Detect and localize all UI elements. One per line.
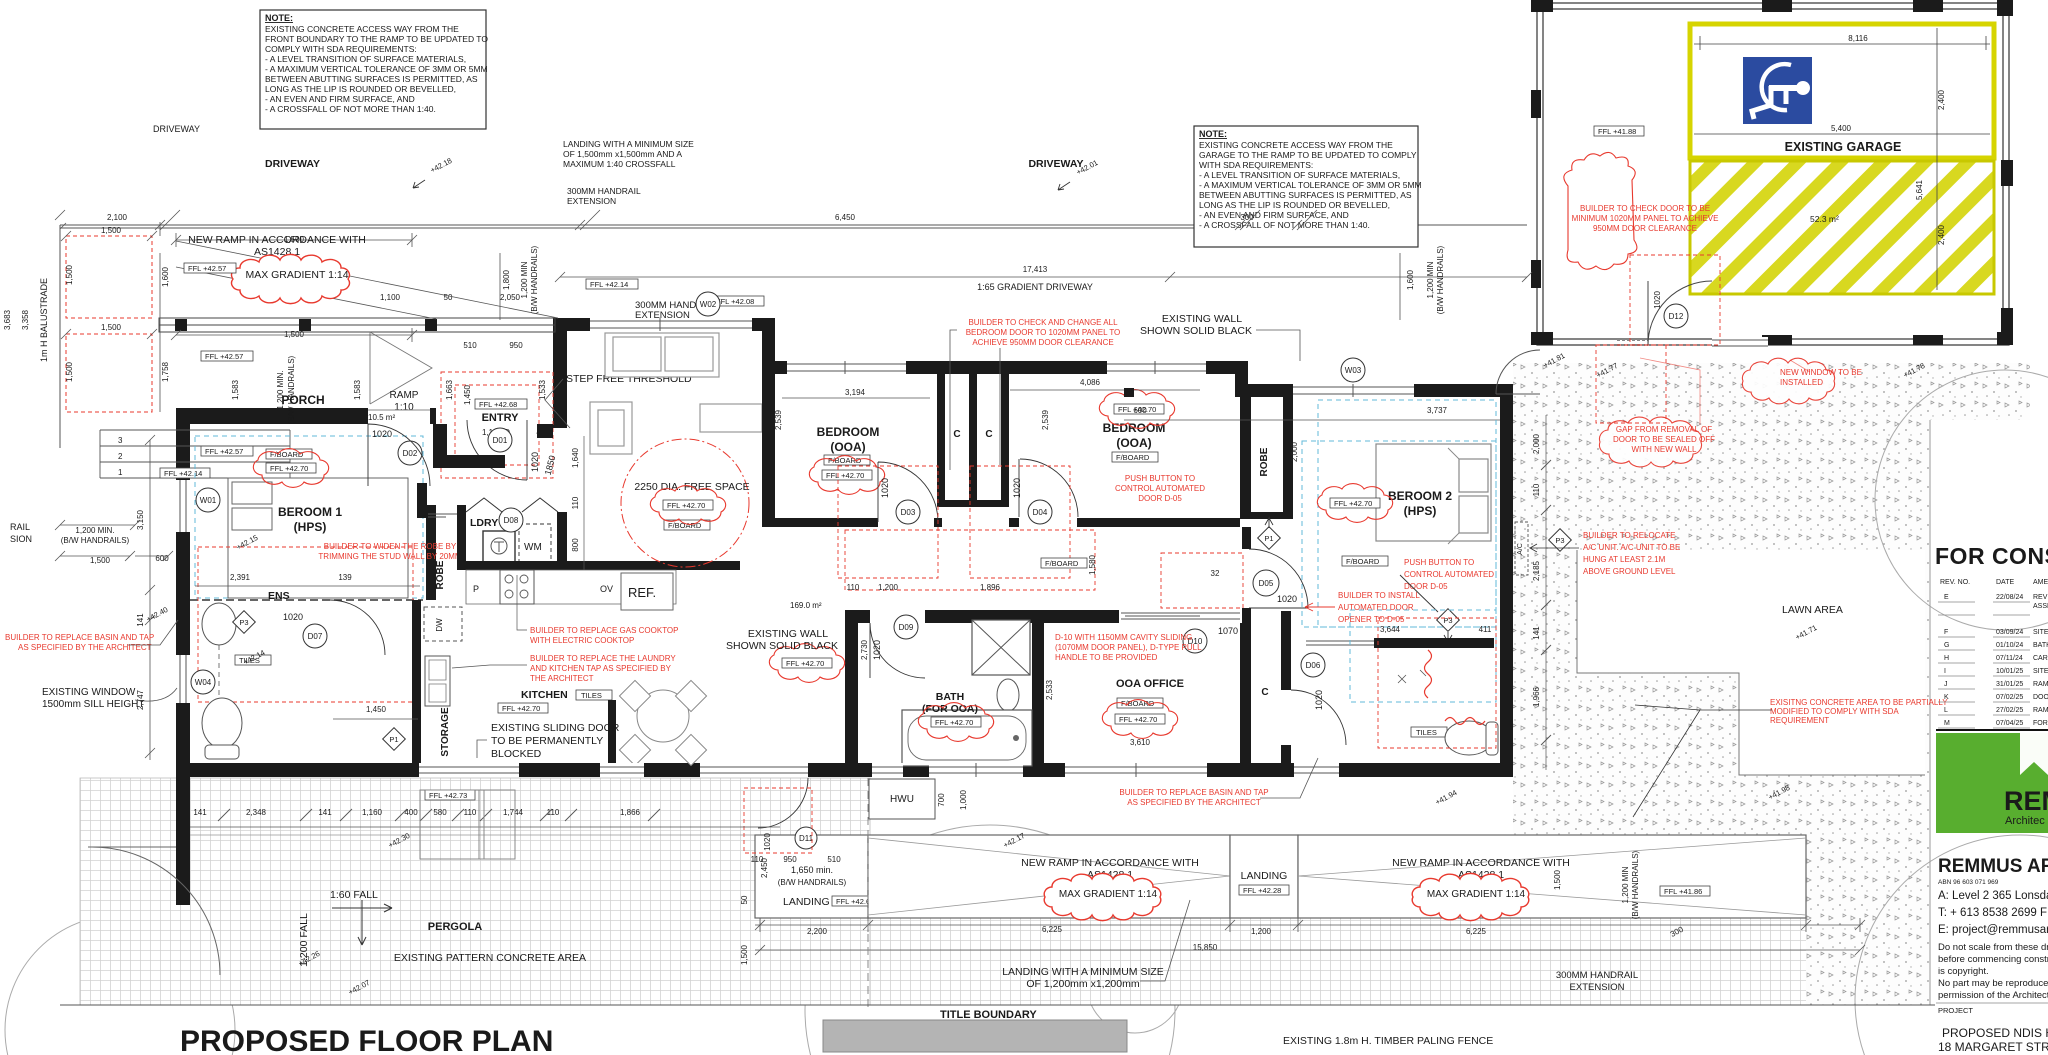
svg-text:A: Level 2 365 Lonsdale: A: Level 2 365 Lonsdale — [1938, 890, 2048, 902]
svg-text:HANDLE TO BE PROVIDED: HANDLE TO BE PROVIDED — [1055, 653, 1158, 662]
svg-text:50: 50 — [444, 293, 453, 302]
svg-text:DOOR T: DOOR T — [2033, 694, 2048, 701]
svg-text:PROJECT: PROJECT — [1938, 1006, 1973, 1015]
svg-text:2,000: 2,000 — [1290, 441, 1299, 462]
svg-text:950MM DOOR CLEARANCE: 950MM DOOR CLEARANCE — [1593, 224, 1697, 233]
svg-text:2,391: 2,391 — [230, 573, 251, 582]
svg-text:AS SPECIFIED BY THE ARCHITECT: AS SPECIFIED BY THE ARCHITECT — [1127, 798, 1261, 807]
svg-text:6,225: 6,225 — [1042, 925, 1063, 934]
svg-text:1,600: 1,600 — [1406, 269, 1415, 290]
svg-text:52.3 m²: 52.3 m² — [1810, 214, 1839, 224]
svg-text:2: 2 — [118, 452, 123, 461]
svg-text:ROBE: ROBE — [1259, 447, 1270, 476]
svg-text:1020: 1020 — [1277, 594, 1297, 604]
svg-text:EXISTING 1.8m H. TIMBER PALING: EXISTING 1.8m H. TIMBER PALING FENCE — [1283, 1035, 1493, 1047]
svg-text:169.0 m²: 169.0 m² — [790, 601, 822, 610]
svg-text:1,650 min.: 1,650 min. — [791, 865, 833, 875]
svg-text:1020: 1020 — [530, 452, 540, 472]
svg-text:F/BOARD: F/BOARD — [270, 450, 304, 459]
svg-text:MAXIMUM 1:40 CROSSFALL: MAXIMUM 1:40 CROSSFALL — [563, 159, 676, 169]
svg-text:BEDROOM DOOR TO 1020MM PANEL T: BEDROOM DOOR TO 1020MM PANEL TO — [966, 328, 1121, 337]
svg-text:E: project@remmusarch: E: project@remmusarch — [1938, 924, 2048, 936]
svg-text:FFL +41.86: FFL +41.86 — [1664, 887, 1702, 896]
svg-text:ROBE: ROBE — [435, 560, 446, 589]
svg-text:1,500: 1,500 — [90, 556, 111, 565]
svg-text:REV. NO.: REV. NO. — [1940, 579, 1970, 586]
svg-text:RAMP G: RAMP G — [2033, 681, 2048, 688]
svg-text:WITH SDA REQUIREMENTS:: WITH SDA REQUIREMENTS: — [1199, 160, 1313, 170]
svg-text:P3: P3 — [239, 618, 248, 627]
svg-text:TRIMMING THE STUD WALL BY 20MM: TRIMMING THE STUD WALL BY 20MM — [318, 552, 461, 561]
svg-text:EXISTING WALL: EXISTING WALL — [748, 628, 828, 640]
svg-text:LANDING WITH A MINIMUM SIZE: LANDING WITH A MINIMUM SIZE — [1002, 966, 1164, 978]
svg-text:J: J — [1944, 681, 1948, 688]
svg-text:1,500: 1,500 — [65, 264, 74, 285]
svg-text:DOOR D-05: DOOR D-05 — [1138, 494, 1182, 503]
svg-text:SHOWN SOLID BLACK: SHOWN SOLID BLACK — [1140, 325, 1252, 337]
svg-text:EXISITNG CONCRETE AREA TO BE P: EXISITNG CONCRETE AREA TO BE PARTIALLY — [1770, 698, 1948, 707]
svg-text:6,225: 6,225 — [1466, 927, 1487, 936]
svg-text:W03: W03 — [1345, 366, 1362, 375]
svg-text:BUILDER TO RELOCATE: BUILDER TO RELOCATE — [1583, 531, 1675, 540]
svg-text:1,200 MIN.: 1,200 MIN. — [276, 370, 285, 409]
svg-text:EXISTING PATTERN CONCRETE AREA: EXISTING PATTERN CONCRETE AREA — [394, 952, 586, 964]
svg-text:PROPOSED FLOOR PLAN: PROPOSED FLOOR PLAN — [180, 1025, 553, 1055]
svg-text:1,800: 1,800 — [502, 269, 511, 290]
svg-text:1,200 MIN: 1,200 MIN — [1621, 866, 1630, 903]
svg-text:BUILDER TO INSTALL: BUILDER TO INSTALL — [1338, 591, 1420, 600]
svg-text:C: C — [1261, 687, 1268, 698]
svg-text:before commencing construc: before commencing construc — [1938, 954, 2048, 965]
svg-text:FFL +42.70: FFL +42.70 — [826, 471, 864, 480]
svg-text:F/BOARD: F/BOARD — [1045, 559, 1079, 568]
svg-text:07/04/25: 07/04/25 — [1996, 720, 2023, 727]
svg-text:510: 510 — [827, 855, 841, 864]
svg-text:(B/W HANDRAILS): (B/W HANDRAILS) — [287, 355, 296, 424]
svg-text:FFL +42.70: FFL +42.70 — [1334, 499, 1372, 508]
svg-text:BATH: BATH — [936, 691, 964, 703]
svg-text:(B/W HANDRAILS): (B/W HANDRAILS) — [1631, 850, 1640, 919]
svg-text:1,640: 1,640 — [571, 447, 580, 468]
svg-text:RAMP: RAMP — [390, 390, 419, 401]
svg-text:BUILDER TO REPLACE THE LAUNDRY: BUILDER TO REPLACE THE LAUNDRY — [530, 654, 676, 663]
svg-text:141: 141 — [1532, 626, 1541, 640]
svg-text:1,200 MIN: 1,200 MIN — [520, 261, 529, 298]
svg-text:M: M — [1944, 720, 1950, 727]
svg-text:1,966: 1,966 — [1532, 686, 1541, 707]
svg-text:1,583: 1,583 — [231, 379, 240, 400]
svg-text:2,050: 2,050 — [500, 293, 521, 302]
svg-text:1:60 FALL: 1:60 FALL — [330, 889, 378, 901]
svg-text:3,610: 3,610 — [1130, 738, 1151, 747]
svg-text:1,533: 1,533 — [538, 379, 547, 400]
svg-text:No part may be reproduced o: No part may be reproduced o — [1938, 978, 2048, 989]
svg-text:A/C: A/C — [1517, 543, 1524, 555]
svg-text:MAX GRADIENT 1:14: MAX GRADIENT 1:14 — [1427, 889, 1526, 900]
svg-text:- AN EVEN AND FIRM SURFACE, AN: - AN EVEN AND FIRM SURFACE, AND — [1199, 210, 1349, 220]
svg-text:Do not scale from these draw: Do not scale from these draw — [1938, 942, 2048, 953]
svg-text:8,116: 8,116 — [1848, 34, 1868, 43]
svg-text:BUILDER TO CHECK AND CHANGE AL: BUILDER TO CHECK AND CHANGE ALL — [968, 318, 1118, 327]
svg-text:BUILDER TO REPLACE BASIN AND T: BUILDER TO REPLACE BASIN AND TAP — [5, 633, 154, 642]
svg-text:1,500: 1,500 — [101, 323, 122, 332]
svg-text:COMPLY WITH SDA REQUIREMENTS:: COMPLY WITH SDA REQUIREMENTS: — [265, 44, 417, 54]
svg-text:WM: WM — [524, 542, 542, 553]
svg-text:NEW RAMP IN ACCORDANCE WITH: NEW RAMP IN ACCORDANCE WITH — [188, 234, 366, 246]
svg-text:2,400: 2,400 — [1937, 89, 1946, 110]
svg-text:1: 1 — [118, 468, 123, 477]
svg-text:2,000: 2,000 — [1532, 433, 1541, 454]
svg-text:EXISTING SLIDING DOOR: EXISTING SLIDING DOOR — [491, 722, 620, 734]
svg-text:3,737: 3,737 — [1427, 406, 1448, 415]
svg-text:ASSESS: ASSESS — [2033, 603, 2048, 610]
svg-text:FFL +42.08: FFL +42.08 — [716, 297, 754, 306]
svg-text:(OOA): (OOA) — [1116, 436, 1151, 450]
svg-text:REQUIREMENT: REQUIREMENT — [1770, 716, 1829, 725]
svg-text:1,580: 1,580 — [1088, 554, 1097, 575]
svg-text:EXISTING WALL: EXISTING WALL — [1162, 313, 1242, 325]
svg-text:BUILDER TO WIDEN THE ROBE BY: BUILDER TO WIDEN THE ROBE BY — [324, 542, 457, 551]
svg-text:STORAGE: STORAGE — [440, 707, 451, 757]
svg-text:GAP FROM REMOVAL OF: GAP FROM REMOVAL OF — [1616, 425, 1712, 434]
svg-text:D-10 WITH 1150MM CAVITY SLIDIN: D-10 WITH 1150MM CAVITY SLIDING — [1055, 633, 1192, 642]
svg-text:D04: D04 — [1033, 508, 1048, 517]
svg-text:EXTENSION: EXTENSION — [567, 196, 616, 206]
svg-text:3,150: 3,150 — [136, 509, 145, 530]
svg-text:SITE LEV: SITE LEV — [2033, 668, 2048, 675]
svg-text:1,200: 1,200 — [878, 583, 899, 592]
svg-text:MAX GRADIENT 1:14: MAX GRADIENT 1:14 — [1059, 889, 1158, 900]
svg-text:110: 110 — [464, 808, 477, 817]
svg-text:D02: D02 — [403, 449, 418, 458]
svg-text:BEROOM 1: BEROOM 1 — [278, 505, 342, 519]
svg-text:FFL +42.70: FFL +42.70 — [786, 659, 824, 668]
svg-text:(HPS): (HPS) — [294, 520, 327, 534]
svg-text:K: K — [1944, 694, 1949, 701]
svg-text:REMMUS ARC: REMMUS ARC — [1938, 856, 2048, 877]
svg-text:2,100: 2,100 — [107, 213, 128, 222]
svg-text:800: 800 — [571, 538, 580, 552]
svg-text:THE ARCHITECT: THE ARCHITECT — [530, 674, 594, 683]
svg-text:17,413: 17,413 — [1023, 265, 1048, 274]
svg-text:FFL +42.70: FFL +42.70 — [270, 464, 308, 473]
svg-text:- A CROSSFALL OF NOT MORE THAN: - A CROSSFALL OF NOT MORE THAN 1:40. — [265, 104, 436, 114]
svg-text:DATE: DATE — [1996, 579, 2014, 586]
svg-text:NOTE:: NOTE: — [1199, 129, 1227, 139]
svg-text:NOTE:: NOTE: — [265, 13, 293, 23]
svg-text:OF 1,500mm x1,500mm AND A: OF 1,500mm x1,500mm AND A — [563, 149, 682, 159]
svg-text:1020: 1020 — [1653, 291, 1662, 309]
svg-text:22/08/24: 22/08/24 — [1996, 594, 2023, 601]
svg-text:BUILDER TO CHECK DOOR TO BE: BUILDER TO CHECK DOOR TO BE — [1580, 204, 1710, 213]
svg-text:F: F — [1944, 629, 1948, 636]
svg-text:BATHRO: BATHRO — [2033, 642, 2048, 649]
svg-text:PUSH BUTTON TO: PUSH BUTTON TO — [1125, 474, 1195, 483]
svg-text:LONG AS THE LIP IS ROUNDED OR: LONG AS THE LIP IS ROUNDED OR BEVELLED, — [265, 84, 456, 94]
svg-text:FFL +42.70: FFL +42.70 — [502, 704, 540, 713]
svg-text:1,200 MIN: 1,200 MIN — [1426, 261, 1435, 298]
svg-text:- A LEVEL TRANSITION OF SURFAC: - A LEVEL TRANSITION OF SURFACE MATERIAL… — [1199, 170, 1400, 180]
svg-text:P: P — [473, 584, 479, 594]
svg-text:1:10: 1:10 — [394, 402, 414, 413]
svg-text:1,200: 1,200 — [1251, 927, 1272, 936]
svg-text:2,730: 2,730 — [860, 639, 869, 660]
svg-text:(B/W HANDRAILS): (B/W HANDRAILS) — [778, 878, 847, 887]
svg-text:(B/W HANDRAILS): (B/W HANDRAILS) — [530, 245, 539, 314]
svg-text:FFL +42.70: FFL +42.70 — [935, 718, 973, 727]
svg-text:LAWN AREA: LAWN AREA — [1782, 604, 1843, 616]
svg-text:F/BOARD: F/BOARD — [1346, 557, 1380, 566]
svg-text:REF.: REF. — [628, 585, 656, 600]
svg-text:2,450: 2,450 — [760, 857, 769, 878]
svg-text:RAIL: RAIL — [10, 522, 30, 532]
svg-text:SHOWN SOLID BLACK: SHOWN SOLID BLACK — [726, 640, 838, 652]
svg-text:LDRY: LDRY — [470, 517, 498, 529]
svg-text:1020: 1020 — [880, 478, 890, 498]
svg-text:300MM HANDRAIL: 300MM HANDRAIL — [1556, 970, 1638, 981]
svg-text:D09: D09 — [899, 623, 914, 632]
svg-text:1:65 GRADIENT DRIVEWAY: 1:65 GRADIENT DRIVEWAY — [977, 282, 1093, 292]
svg-text:W01: W01 — [200, 496, 217, 505]
svg-text:10.5 m²: 10.5 m² — [368, 413, 395, 422]
svg-text:CONTROL AUTOMATED: CONTROL AUTOMATED — [1404, 570, 1494, 579]
svg-text:1,500: 1,500 — [101, 226, 122, 235]
svg-text:D08: D08 — [504, 516, 519, 525]
svg-text:1500mm SILL HEIGHT: 1500mm SILL HEIGHT — [42, 699, 144, 710]
svg-text:07/02/25: 07/02/25 — [1996, 694, 2023, 701]
svg-text:SION: SION — [10, 534, 32, 544]
svg-text:D05: D05 — [1259, 579, 1274, 588]
svg-text:KITCHEN: KITCHEN — [521, 689, 568, 701]
svg-text:Architec: Architec — [2005, 815, 2045, 827]
svg-text:1,500: 1,500 — [740, 944, 749, 965]
svg-text:1,160: 1,160 — [362, 808, 383, 817]
svg-text:1020: 1020 — [872, 640, 882, 660]
svg-text:AUTOMATED DOOR: AUTOMATED DOOR — [1338, 603, 1414, 612]
svg-text:D11: D11 — [799, 834, 814, 843]
svg-text:1020: 1020 — [283, 612, 303, 622]
svg-text:NEW RAMP IN ACCORDANCE WITH: NEW RAMP IN ACCORDANCE WITH — [1021, 857, 1199, 869]
svg-text:2,200: 2,200 — [807, 927, 828, 936]
svg-text:110: 110 — [847, 583, 860, 592]
svg-text:TILES: TILES — [581, 691, 602, 700]
svg-text:MAX GRADIENT 1:14: MAX GRADIENT 1:14 — [245, 269, 348, 281]
svg-text:LANDING WITH A MINIMUM SIZE: LANDING WITH A MINIMUM SIZE — [563, 139, 694, 149]
svg-text:27/02/25: 27/02/25 — [1996, 707, 2023, 714]
svg-text:FFL +42.57: FFL +42.57 — [188, 264, 226, 273]
svg-text:WITH NEW WALL: WITH NEW WALL — [1631, 445, 1697, 454]
svg-text:2,539: 2,539 — [774, 409, 783, 430]
svg-text:3: 3 — [118, 436, 123, 445]
svg-text:ENTRY: ENTRY — [482, 412, 520, 424]
svg-text:LANDING: LANDING — [1241, 870, 1288, 882]
svg-text:1,583: 1,583 — [353, 379, 362, 400]
svg-text:5,400: 5,400 — [1831, 124, 1852, 133]
svg-text:PERGOLA: PERGOLA — [428, 921, 482, 933]
svg-text:(FOR OOA): (FOR OOA) — [922, 703, 978, 715]
svg-text:F/BOARD: F/BOARD — [1116, 453, 1150, 462]
svg-text:110: 110 — [1532, 483, 1541, 496]
svg-text:CONTROL AUTOMATED: CONTROL AUTOMATED — [1115, 484, 1205, 493]
svg-text:1,500: 1,500 — [65, 361, 74, 382]
svg-text:T: + 613 8538 2699 F: +: T: + 613 8538 2699 F: + — [1938, 907, 2048, 919]
svg-text:(B/W HANDRAILS): (B/W HANDRAILS) — [1436, 245, 1445, 314]
svg-text:FFL +42.28: FFL +42.28 — [1243, 886, 1281, 895]
svg-text:(1070MM DOOR PANEL), D-TYPE PU: (1070MM DOOR PANEL), D-TYPE PULL — [1055, 643, 1202, 652]
svg-text:580: 580 — [433, 808, 447, 817]
svg-text:700: 700 — [937, 793, 946, 807]
svg-text:W02: W02 — [700, 300, 717, 309]
svg-text:01/10/24: 01/10/24 — [1996, 642, 2023, 649]
svg-text:BEDROOM: BEDROOM — [817, 425, 880, 439]
svg-text:1,450: 1,450 — [366, 705, 387, 714]
svg-text:CARPOR: CARPOR — [2033, 655, 2048, 662]
svg-text:BETWEEN ABUTTING SURFACES IS P: BETWEEN ABUTTING SURFACES IS PERMITTED, … — [1199, 190, 1412, 200]
svg-text:D01: D01 — [493, 436, 508, 445]
svg-text:EXISTING WINDOW: EXISTING WINDOW — [42, 687, 136, 698]
svg-text:FFL +42.70: FFL +42.70 — [667, 501, 705, 510]
svg-text:1,663: 1,663 — [445, 379, 454, 400]
svg-text:141: 141 — [318, 808, 332, 817]
svg-text:6,450: 6,450 — [835, 213, 856, 222]
svg-text:OPENER TO D-05: OPENER TO D-05 — [1338, 615, 1405, 624]
svg-text:FFL +42.57: FFL +42.57 — [205, 447, 243, 456]
svg-text:15,850: 15,850 — [1193, 943, 1218, 952]
svg-text:510: 510 — [463, 341, 477, 350]
svg-text:L: L — [1944, 707, 1948, 714]
svg-text:- A MAXIMUM VERTICAL TOLERANCE: - A MAXIMUM VERTICAL TOLERANCE OF 3MM OR… — [265, 64, 488, 74]
svg-text:1020: 1020 — [1012, 478, 1022, 498]
svg-text:31/01/25: 31/01/25 — [1996, 681, 2023, 688]
svg-text:18 MARGARET STREE: 18 MARGARET STREE — [1938, 1040, 2048, 1054]
svg-text:I: I — [1944, 668, 1946, 675]
svg-text:32: 32 — [1211, 569, 1220, 578]
svg-text:300MM HANDRAIL: 300MM HANDRAIL — [567, 186, 641, 196]
svg-text:G: G — [1944, 642, 1949, 649]
svg-text:FFL +42.73: FFL +42.73 — [429, 791, 467, 800]
svg-text:GARAGE TO THE RAMP TO BE UPDAT: GARAGE TO THE RAMP TO BE UPDATED TO COMP… — [1199, 150, 1417, 160]
svg-text:TILES: TILES — [1416, 728, 1437, 737]
svg-text:ACHIEVE 950MM DOOR CLEARANCE: ACHIEVE 950MM DOOR CLEARANCE — [972, 338, 1113, 347]
svg-text:50: 50 — [740, 895, 749, 904]
svg-text:(OOA): (OOA) — [830, 440, 865, 454]
svg-text:3,358: 3,358 — [21, 309, 30, 330]
svg-text:950: 950 — [783, 855, 797, 864]
svg-text:P1: P1 — [389, 735, 398, 744]
svg-text:5,641: 5,641 — [1915, 179, 1924, 200]
svg-text:P3: P3 — [1443, 616, 1452, 625]
svg-text:1020: 1020 — [763, 833, 772, 851]
svg-text:- AN EVEN AND FIRM SURFACE, AN: - AN EVEN AND FIRM SURFACE, AND — [265, 94, 415, 104]
svg-text:03/09/24: 03/09/24 — [1996, 629, 2023, 636]
svg-text:P1: P1 — [1264, 534, 1273, 543]
svg-text:BEROOM 2: BEROOM 2 — [1388, 489, 1452, 503]
svg-text:1,758: 1,758 — [161, 361, 170, 382]
svg-text:WITH ELECTRIC COOKTOP: WITH ELECTRIC COOKTOP — [530, 636, 634, 645]
svg-text:AND KITCHEN TAP AS SPECIFIED B: AND KITCHEN TAP AS SPECIFIED BY — [530, 664, 672, 673]
svg-text:1,200 MIN.: 1,200 MIN. — [75, 526, 114, 535]
svg-text:FFL +42.57: FFL +42.57 — [205, 352, 243, 361]
svg-text:NEW WINDOW TO BE: NEW WINDOW TO BE — [1780, 368, 1862, 377]
svg-text:SITE LEV: SITE LEV — [2033, 629, 2048, 636]
svg-text:BLOCKED: BLOCKED — [491, 748, 542, 760]
svg-text:FFL +41.88: FFL +41.88 — [1598, 127, 1636, 136]
svg-text:1,450: 1,450 — [463, 384, 472, 405]
svg-text:LANDING: LANDING — [783, 896, 830, 908]
svg-text:3,644: 3,644 — [1380, 625, 1401, 634]
svg-text:INSTALLED: INSTALLED — [1780, 378, 1823, 387]
svg-text:1,896: 1,896 — [980, 583, 1001, 592]
svg-text:1,744: 1,744 — [503, 808, 524, 817]
svg-text:1:200 FALL: 1:200 FALL — [298, 913, 310, 967]
svg-text:FFL +42.68: FFL +42.68 — [479, 400, 517, 409]
svg-text:MINIMUM 1020MM PANEL TO ACHIEV: MINIMUM 1020MM PANEL TO ACHIEVE — [1572, 214, 1719, 223]
svg-text:ENS: ENS — [268, 590, 290, 602]
svg-text:DW: DW — [435, 618, 444, 632]
svg-text:FFL +42.14: FFL +42.14 — [590, 280, 628, 289]
svg-text:DRIVEWAY: DRIVEWAY — [153, 124, 200, 134]
svg-text:141: 141 — [193, 808, 207, 817]
svg-text:3,683: 3,683 — [3, 309, 12, 330]
svg-text:P3: P3 — [1555, 536, 1564, 545]
svg-text:411: 411 — [1479, 625, 1492, 634]
svg-text:EXISTING CONCRETE ACCESS WAY F: EXISTING CONCRETE ACCESS WAY FROM THE — [265, 24, 459, 34]
svg-text:PROPOSED NDIS HOU: PROPOSED NDIS HOU — [1942, 1026, 2048, 1040]
svg-text:1m H BALUSTRADE: 1m H BALUSTRADE — [39, 278, 49, 362]
svg-text:(HPS): (HPS) — [1404, 504, 1437, 518]
svg-text:1,100: 1,100 — [380, 293, 401, 302]
svg-text:MODIFIED TO COMPLY WITH SDA: MODIFIED TO COMPLY WITH SDA — [1770, 707, 1899, 716]
svg-text:141: 141 — [136, 613, 145, 627]
svg-text:1070: 1070 — [1218, 626, 1238, 636]
svg-text:permission of the Architect.: permission of the Architect. — [1938, 990, 2048, 1001]
svg-text:E: E — [1944, 594, 1949, 601]
svg-text:AS SPECIFIED BY THE ARCHITECT: AS SPECIFIED BY THE ARCHITECT — [18, 643, 152, 652]
svg-text:DRIVEWAY: DRIVEWAY — [265, 158, 320, 170]
svg-text:1,866: 1,866 — [620, 808, 641, 817]
svg-text:LONG AS THE LIP IS ROUNDED OR: LONG AS THE LIP IS ROUNDED OR BEVELLED, — [1199, 200, 1390, 210]
svg-text:110: 110 — [571, 496, 580, 509]
svg-text:C: C — [953, 429, 960, 440]
svg-text:is copyright.: is copyright. — [1938, 966, 1989, 977]
svg-text:FOR CONSTR: FOR CONSTR — [1935, 543, 2048, 569]
svg-text:FFL +42.14: FFL +42.14 — [164, 469, 202, 478]
svg-text:AMENDE: AMENDE — [2033, 579, 2048, 586]
svg-text:D06: D06 — [1306, 661, 1321, 670]
svg-text:1,600: 1,600 — [161, 266, 170, 287]
svg-text:600: 600 — [155, 554, 169, 563]
svg-text:BUILDER TO REPLACE GAS COOKTOP: BUILDER TO REPLACE GAS COOKTOP — [530, 626, 679, 635]
svg-text:- A CROSSFALL OF NOT MORE THAN: - A CROSSFALL OF NOT MORE THAN 1:40. — [1199, 220, 1370, 230]
svg-text:1020: 1020 — [372, 429, 392, 439]
svg-text:3,194: 3,194 — [845, 388, 866, 397]
svg-text:- A MAXIMUM VERTICAL TOLERANCE: - A MAXIMUM VERTICAL TOLERANCE OF 3MM OR… — [1199, 180, 1422, 190]
svg-text:2,539: 2,539 — [1041, 409, 1050, 430]
svg-text:BETWEEN ABUTTING SURFACES IS P: BETWEEN ABUTTING SURFACES IS PERMITTED, … — [265, 74, 478, 84]
svg-text:C: C — [985, 429, 992, 440]
svg-text:1,000: 1,000 — [959, 789, 968, 810]
svg-text:1,500: 1,500 — [284, 330, 305, 339]
svg-text:139: 139 — [338, 573, 352, 582]
svg-text:D03: D03 — [901, 508, 916, 517]
svg-text:HUNG AT LEAST 2.1M: HUNG AT LEAST 2.1M — [1583, 555, 1666, 564]
svg-text:REVISED: REVISED — [2033, 594, 2048, 601]
svg-text:EXISTING CONCRETE ACCESS WAY F: EXISTING CONCRETE ACCESS WAY FROM THE — [1199, 140, 1393, 150]
svg-text:07/11/24: 07/11/24 — [1996, 655, 2023, 662]
svg-text:TO BE PERMANENTLY: TO BE PERMANENTLY — [491, 735, 603, 747]
svg-text:ABN 96 603 071 969: ABN 96 603 071 969 — [1938, 879, 1999, 886]
svg-text:OV: OV — [600, 584, 613, 594]
